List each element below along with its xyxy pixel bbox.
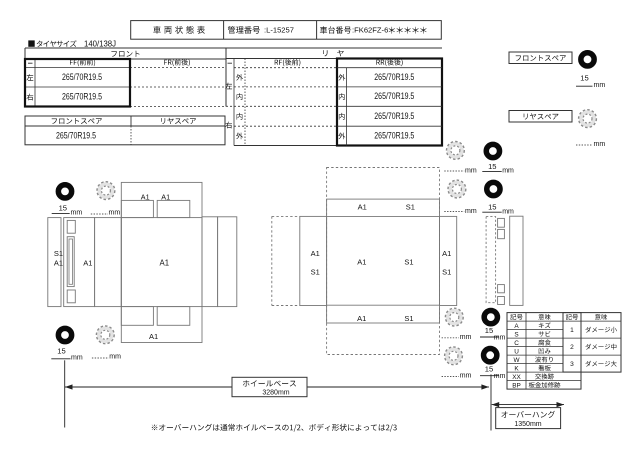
- svg-text:140/138J: 140/138J: [84, 40, 116, 49]
- svg-text:mm: mm: [71, 355, 83, 362]
- svg-text:S1: S1: [442, 267, 451, 276]
- svg-text:mm: mm: [71, 210, 83, 217]
- svg-text:U: U: [514, 348, 519, 355]
- svg-text:A1: A1: [141, 192, 150, 201]
- svg-text:265/70R19.5: 265/70R19.5: [56, 131, 96, 141]
- svg-text:S1: S1: [311, 267, 320, 276]
- svg-text:A: A: [514, 323, 519, 330]
- svg-text:BP: BP: [512, 382, 521, 389]
- svg-text:mm: mm: [494, 373, 506, 380]
- svg-text:265/70R19.5: 265/70R19.5: [62, 92, 102, 102]
- svg-text:A1: A1: [357, 257, 366, 266]
- svg-text:265/70R19.5: 265/70R19.5: [62, 72, 102, 82]
- svg-text:mm: mm: [460, 334, 472, 341]
- svg-text::L-15257: :L-15257: [264, 26, 294, 35]
- svg-text:265/70R19.5: 265/70R19.5: [374, 131, 414, 141]
- svg-text:1: 1: [570, 327, 574, 334]
- svg-text:15: 15: [57, 346, 65, 355]
- svg-text:mm: mm: [494, 334, 506, 341]
- svg-text:mm: mm: [594, 141, 606, 148]
- svg-text:A1: A1: [83, 258, 92, 267]
- svg-text:A1: A1: [442, 249, 451, 258]
- svg-text:mm: mm: [460, 373, 472, 380]
- svg-text:XX: XX: [512, 374, 521, 381]
- svg-text:mm: mm: [465, 167, 477, 174]
- svg-text:265/70R19.5: 265/70R19.5: [374, 91, 414, 101]
- svg-text:mm: mm: [109, 210, 121, 217]
- svg-text:15: 15: [488, 202, 496, 211]
- svg-text:A1: A1: [358, 202, 367, 211]
- svg-text:15: 15: [580, 73, 588, 82]
- svg-text:mm: mm: [465, 208, 477, 215]
- svg-text:1350mm: 1350mm: [514, 421, 541, 428]
- svg-text:mm: mm: [594, 82, 606, 89]
- svg-text:15: 15: [59, 203, 67, 212]
- svg-text:S1: S1: [406, 202, 415, 211]
- svg-text:A1: A1: [357, 314, 366, 323]
- svg-text::FK62FZ-6: :FK62FZ-6: [352, 26, 388, 35]
- svg-text:3280mm: 3280mm: [262, 390, 289, 397]
- svg-text:W: W: [513, 357, 520, 364]
- svg-text:A1: A1: [311, 249, 320, 258]
- svg-text:A1: A1: [161, 192, 170, 201]
- svg-text:C: C: [514, 340, 519, 347]
- svg-text:S: S: [514, 331, 518, 338]
- svg-text:mm: mm: [109, 354, 121, 361]
- svg-text:265/70R19.5: 265/70R19.5: [374, 111, 414, 121]
- svg-text:15: 15: [488, 162, 496, 171]
- svg-text:S1: S1: [404, 257, 413, 266]
- svg-text:15: 15: [485, 365, 493, 374]
- svg-text:A1: A1: [54, 258, 63, 267]
- svg-text:2: 2: [570, 344, 574, 351]
- svg-text:3: 3: [570, 361, 574, 368]
- svg-text:mm: mm: [502, 208, 514, 215]
- svg-text:A1: A1: [160, 258, 170, 267]
- svg-text:K: K: [514, 365, 519, 372]
- svg-text:S1: S1: [54, 249, 63, 258]
- svg-text:mm: mm: [502, 168, 514, 175]
- svg-text:S1: S1: [404, 314, 413, 323]
- svg-text:15: 15: [485, 326, 493, 335]
- svg-text:A1: A1: [149, 332, 158, 341]
- svg-text:265/70R19.5: 265/70R19.5: [374, 72, 414, 82]
